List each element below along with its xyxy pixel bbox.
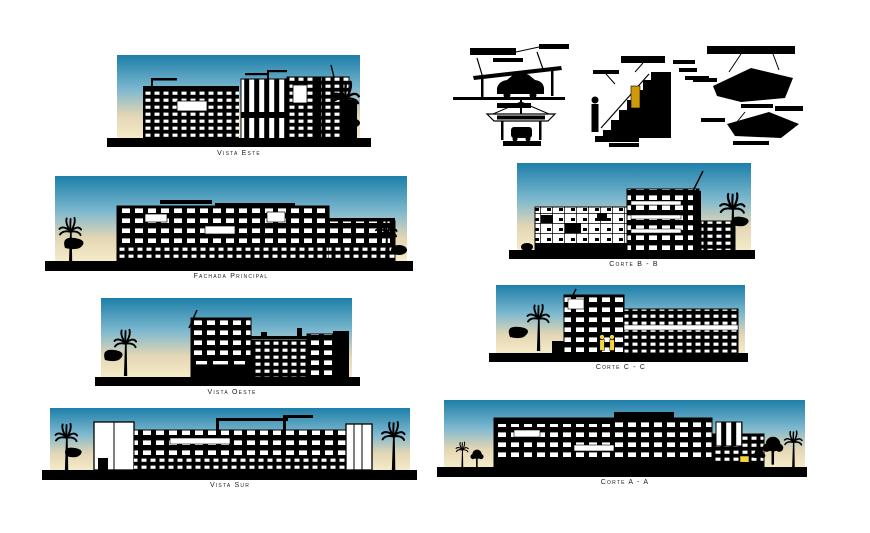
annotation-bar (621, 56, 665, 63)
roof-detail-icon (713, 68, 793, 102)
building-silhouette-corte-c (496, 285, 745, 354)
building-silhouette-corte-b (517, 163, 751, 251)
palm-tree-icon (785, 431, 802, 468)
ground-line (45, 261, 413, 271)
annotation-bar (775, 106, 803, 111)
annotation-bar (733, 141, 769, 145)
palm-tree-icon (527, 305, 549, 351)
panel-caption: Fachada Principal (131, 273, 331, 280)
roof-detail-icon (727, 112, 799, 138)
building-mass (189, 310, 349, 378)
ground-line (95, 377, 360, 386)
annotation-bar (503, 141, 541, 146)
building-mass (494, 412, 764, 468)
annotation-bar (707, 46, 795, 54)
panel-caption: Vista Sur (130, 482, 330, 489)
sky-vista-este (117, 55, 360, 139)
building-silhouette-corte-a (444, 400, 805, 468)
annotation-bar (595, 136, 639, 142)
palm-tree-icon (55, 424, 77, 470)
annotation-bar (593, 70, 619, 74)
building-silhouette-fachada (55, 176, 407, 262)
annotation-bar (741, 104, 773, 108)
shrub-icon (64, 238, 83, 249)
annotation-bar (701, 118, 725, 122)
panel-caption: Corte C - C (521, 364, 721, 371)
sky-corte-c (496, 285, 745, 354)
building-mass (535, 171, 735, 251)
ground-line (437, 467, 807, 477)
highlighted-wall (631, 86, 640, 108)
building-mass (552, 289, 738, 353)
panel-caption: Corte B - B (534, 261, 734, 268)
building-mass (94, 415, 372, 470)
shrub-icon (65, 448, 82, 458)
detail-stair-section (592, 56, 710, 147)
sky-vista-sur (50, 408, 410, 471)
panel-caption: Corte A - A (525, 479, 725, 486)
sky-corte-a (444, 400, 805, 468)
palm-tree-icon (382, 422, 405, 470)
annotation-bar (470, 48, 516, 55)
building-mass (117, 200, 395, 262)
building-silhouette-vista-este (117, 55, 360, 139)
shrub-icon (509, 327, 528, 338)
detail-roof-isometrics (693, 46, 803, 145)
tree-icon (470, 450, 483, 468)
panel-caption: Vista Este (139, 150, 339, 157)
detail-carport-side (453, 44, 569, 108)
building-silhouette-vista-sur (50, 408, 410, 471)
annotation-bar (673, 60, 695, 64)
ground-line (107, 138, 371, 147)
tree-icon (763, 437, 784, 465)
shrub-icon (104, 350, 122, 361)
annotation-bar (693, 78, 717, 82)
car-icon (511, 127, 532, 138)
sky-fachada (55, 176, 407, 262)
palm-tree-icon (456, 442, 468, 468)
shrub-icon (732, 217, 749, 227)
building-mass (143, 65, 357, 139)
building-silhouette-vista-oeste (101, 298, 352, 378)
ground-line (509, 250, 755, 259)
shrub-icon (342, 118, 360, 128)
sky-vista-oeste (101, 298, 352, 378)
cad-sheet: Vista Este (0, 0, 870, 533)
ground-line (489, 353, 748, 362)
shrub-icon (391, 245, 407, 255)
annotation-bar (609, 143, 639, 147)
annotation-bar (679, 68, 697, 72)
person-icon (592, 97, 599, 104)
ground-line (42, 470, 417, 480)
sky-corte-b (517, 163, 751, 251)
detail-sketches (445, 42, 815, 148)
annotation-bar (539, 44, 569, 49)
annotation-bar (493, 58, 523, 62)
panel-caption: Vista Oeste (132, 389, 332, 396)
